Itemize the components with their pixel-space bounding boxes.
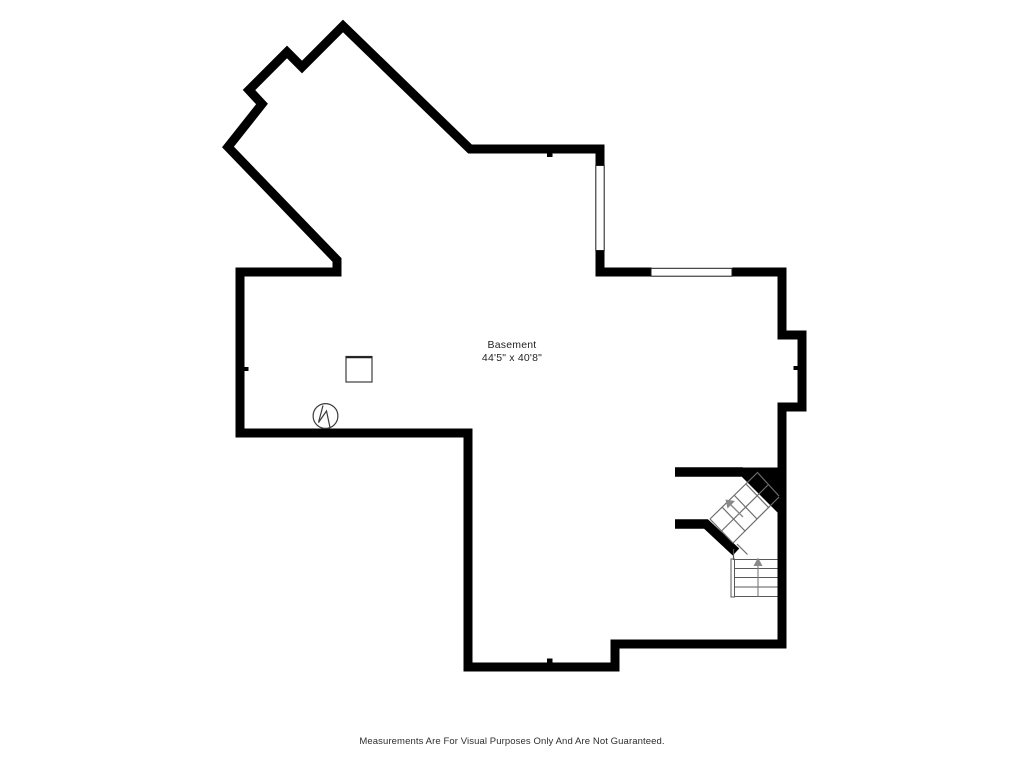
sump-pump-icon	[313, 404, 338, 429]
room-label: Basement 44'5" x 40'8"	[482, 339, 542, 364]
dimension-tick-left	[244, 367, 249, 371]
interior-walls	[675, 472, 743, 552]
straight-stairs-up-arrow-icon	[754, 558, 763, 567]
utility-box-icon	[346, 357, 372, 383]
upper-right-window-icon	[651, 268, 732, 276]
floor-plan-drawing	[0, 0, 1024, 768]
right-wall-window-icon	[596, 166, 604, 251]
disclaimer-text: Measurements Are For Visual Purposes Onl…	[359, 736, 664, 747]
room-dimensions: 44'5" x 40'8"	[482, 352, 542, 365]
floor-plan-page: Basement 44'5" x 40'8" Measurements Are …	[0, 0, 1024, 768]
wall-window-corner-stub	[600, 250, 652, 273]
dimension-tick-right	[794, 366, 799, 370]
stair-corner-fill	[742, 468, 784, 520]
dimension-tick-top	[547, 153, 553, 157]
windows	[596, 166, 732, 277]
stair-wall-lower	[675, 524, 736, 552]
room-name: Basement	[482, 339, 542, 352]
dimension-tick-bottom	[547, 659, 553, 663]
winder-stairs-icon	[710, 472, 779, 560]
